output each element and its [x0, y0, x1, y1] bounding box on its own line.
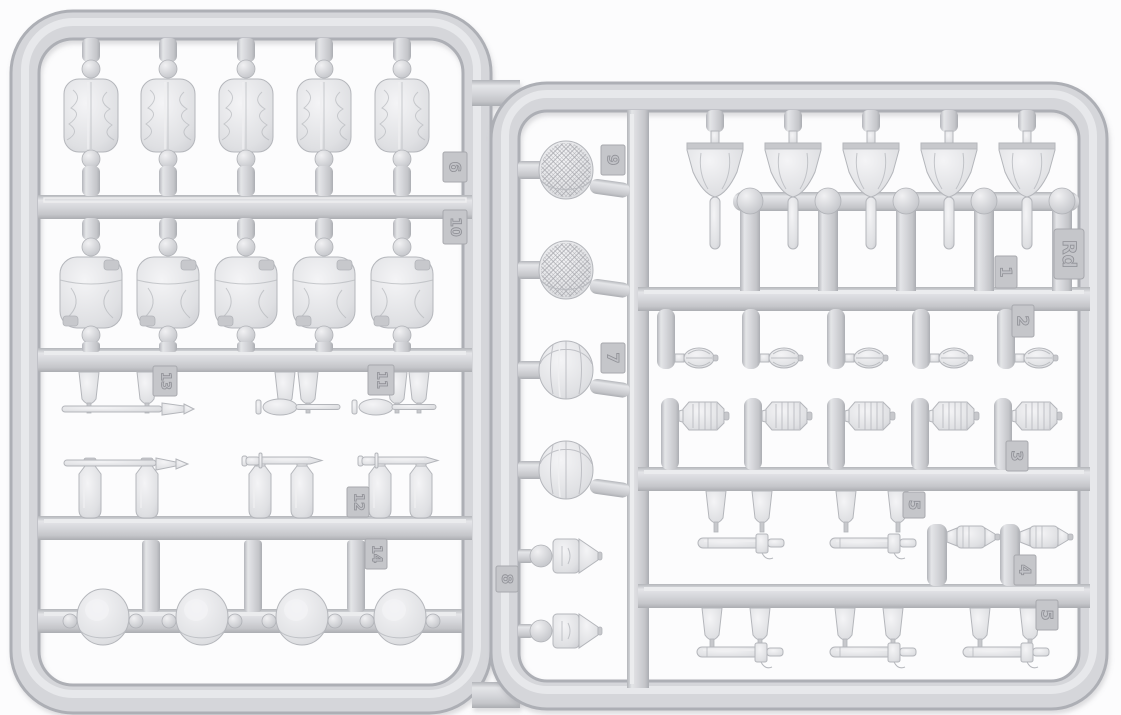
part-tag-label: 2 — [1014, 315, 1033, 326]
part-tag-12: 12 — [347, 487, 369, 517]
connector-tube — [347, 540, 365, 612]
part-tag-13: 13 — [153, 366, 177, 396]
t-post — [737, 188, 763, 291]
part-tag-8: 8 — [496, 566, 518, 592]
part-tag-label: 6 — [446, 161, 465, 172]
part-tag-label: Rd — [1058, 240, 1080, 268]
part-tag-label: 4 — [1016, 564, 1035, 575]
part-tag-label: 9 — [604, 154, 623, 165]
part-tag-label: 13 — [158, 372, 173, 390]
part-tag-label: 11 — [374, 371, 389, 389]
standing-post — [911, 398, 929, 470]
part-tag-label: 8 — [498, 574, 516, 584]
part-tag-label: 14 — [369, 545, 384, 563]
sprue-photo: 6 10 13 11 12 14 — [0, 0, 1121, 715]
part-tag-label: 5 — [1038, 609, 1057, 620]
part-tag-label: 1 — [997, 266, 1016, 277]
t-post — [815, 188, 841, 291]
part-tag-10: 10 — [443, 210, 467, 244]
lantern-part — [762, 402, 812, 430]
hanging-post — [912, 309, 930, 369]
part-tag-7: 7 — [601, 343, 625, 373]
part-tag-label: 3 — [1008, 450, 1027, 461]
part-tag-11: 11 — [368, 365, 394, 395]
part-tag-1: 1 — [995, 256, 1017, 288]
part-tag-4: 4 — [1014, 555, 1036, 585]
lantern-part — [1012, 402, 1062, 430]
part-tag-label: 7 — [604, 352, 623, 363]
t-post — [971, 188, 997, 291]
part-tag-6: 6 — [443, 152, 467, 182]
lantern-part — [929, 402, 979, 430]
part-tag-Rd: Rd — [1054, 229, 1084, 279]
standing-post — [661, 398, 679, 470]
part-tag-3: 3 — [1006, 441, 1028, 471]
hanging-post — [742, 309, 760, 369]
hanging-post — [657, 309, 675, 369]
connector-tube — [244, 540, 262, 612]
part-tag-label: 5 — [905, 500, 923, 510]
connector-tube — [142, 540, 160, 612]
sprue-illustration: 6 10 13 11 12 14 — [0, 0, 1121, 715]
t-post — [893, 188, 919, 291]
hanging-post — [827, 309, 845, 369]
standing-post — [827, 398, 845, 470]
part-tag-5-lower: 5 — [1036, 600, 1058, 630]
part-tag-label: 12 — [351, 493, 366, 511]
lantern-part — [845, 402, 895, 430]
part-tag-9: 9 — [601, 145, 625, 175]
part-tag-14: 14 — [365, 539, 387, 569]
part-tag-5-upper: 5 — [903, 492, 925, 518]
part-tag-label: 10 — [447, 217, 463, 237]
standing-post — [744, 398, 762, 470]
lantern-part — [679, 402, 729, 430]
part-tag-2: 2 — [1012, 305, 1034, 337]
standing-post — [927, 524, 947, 586]
